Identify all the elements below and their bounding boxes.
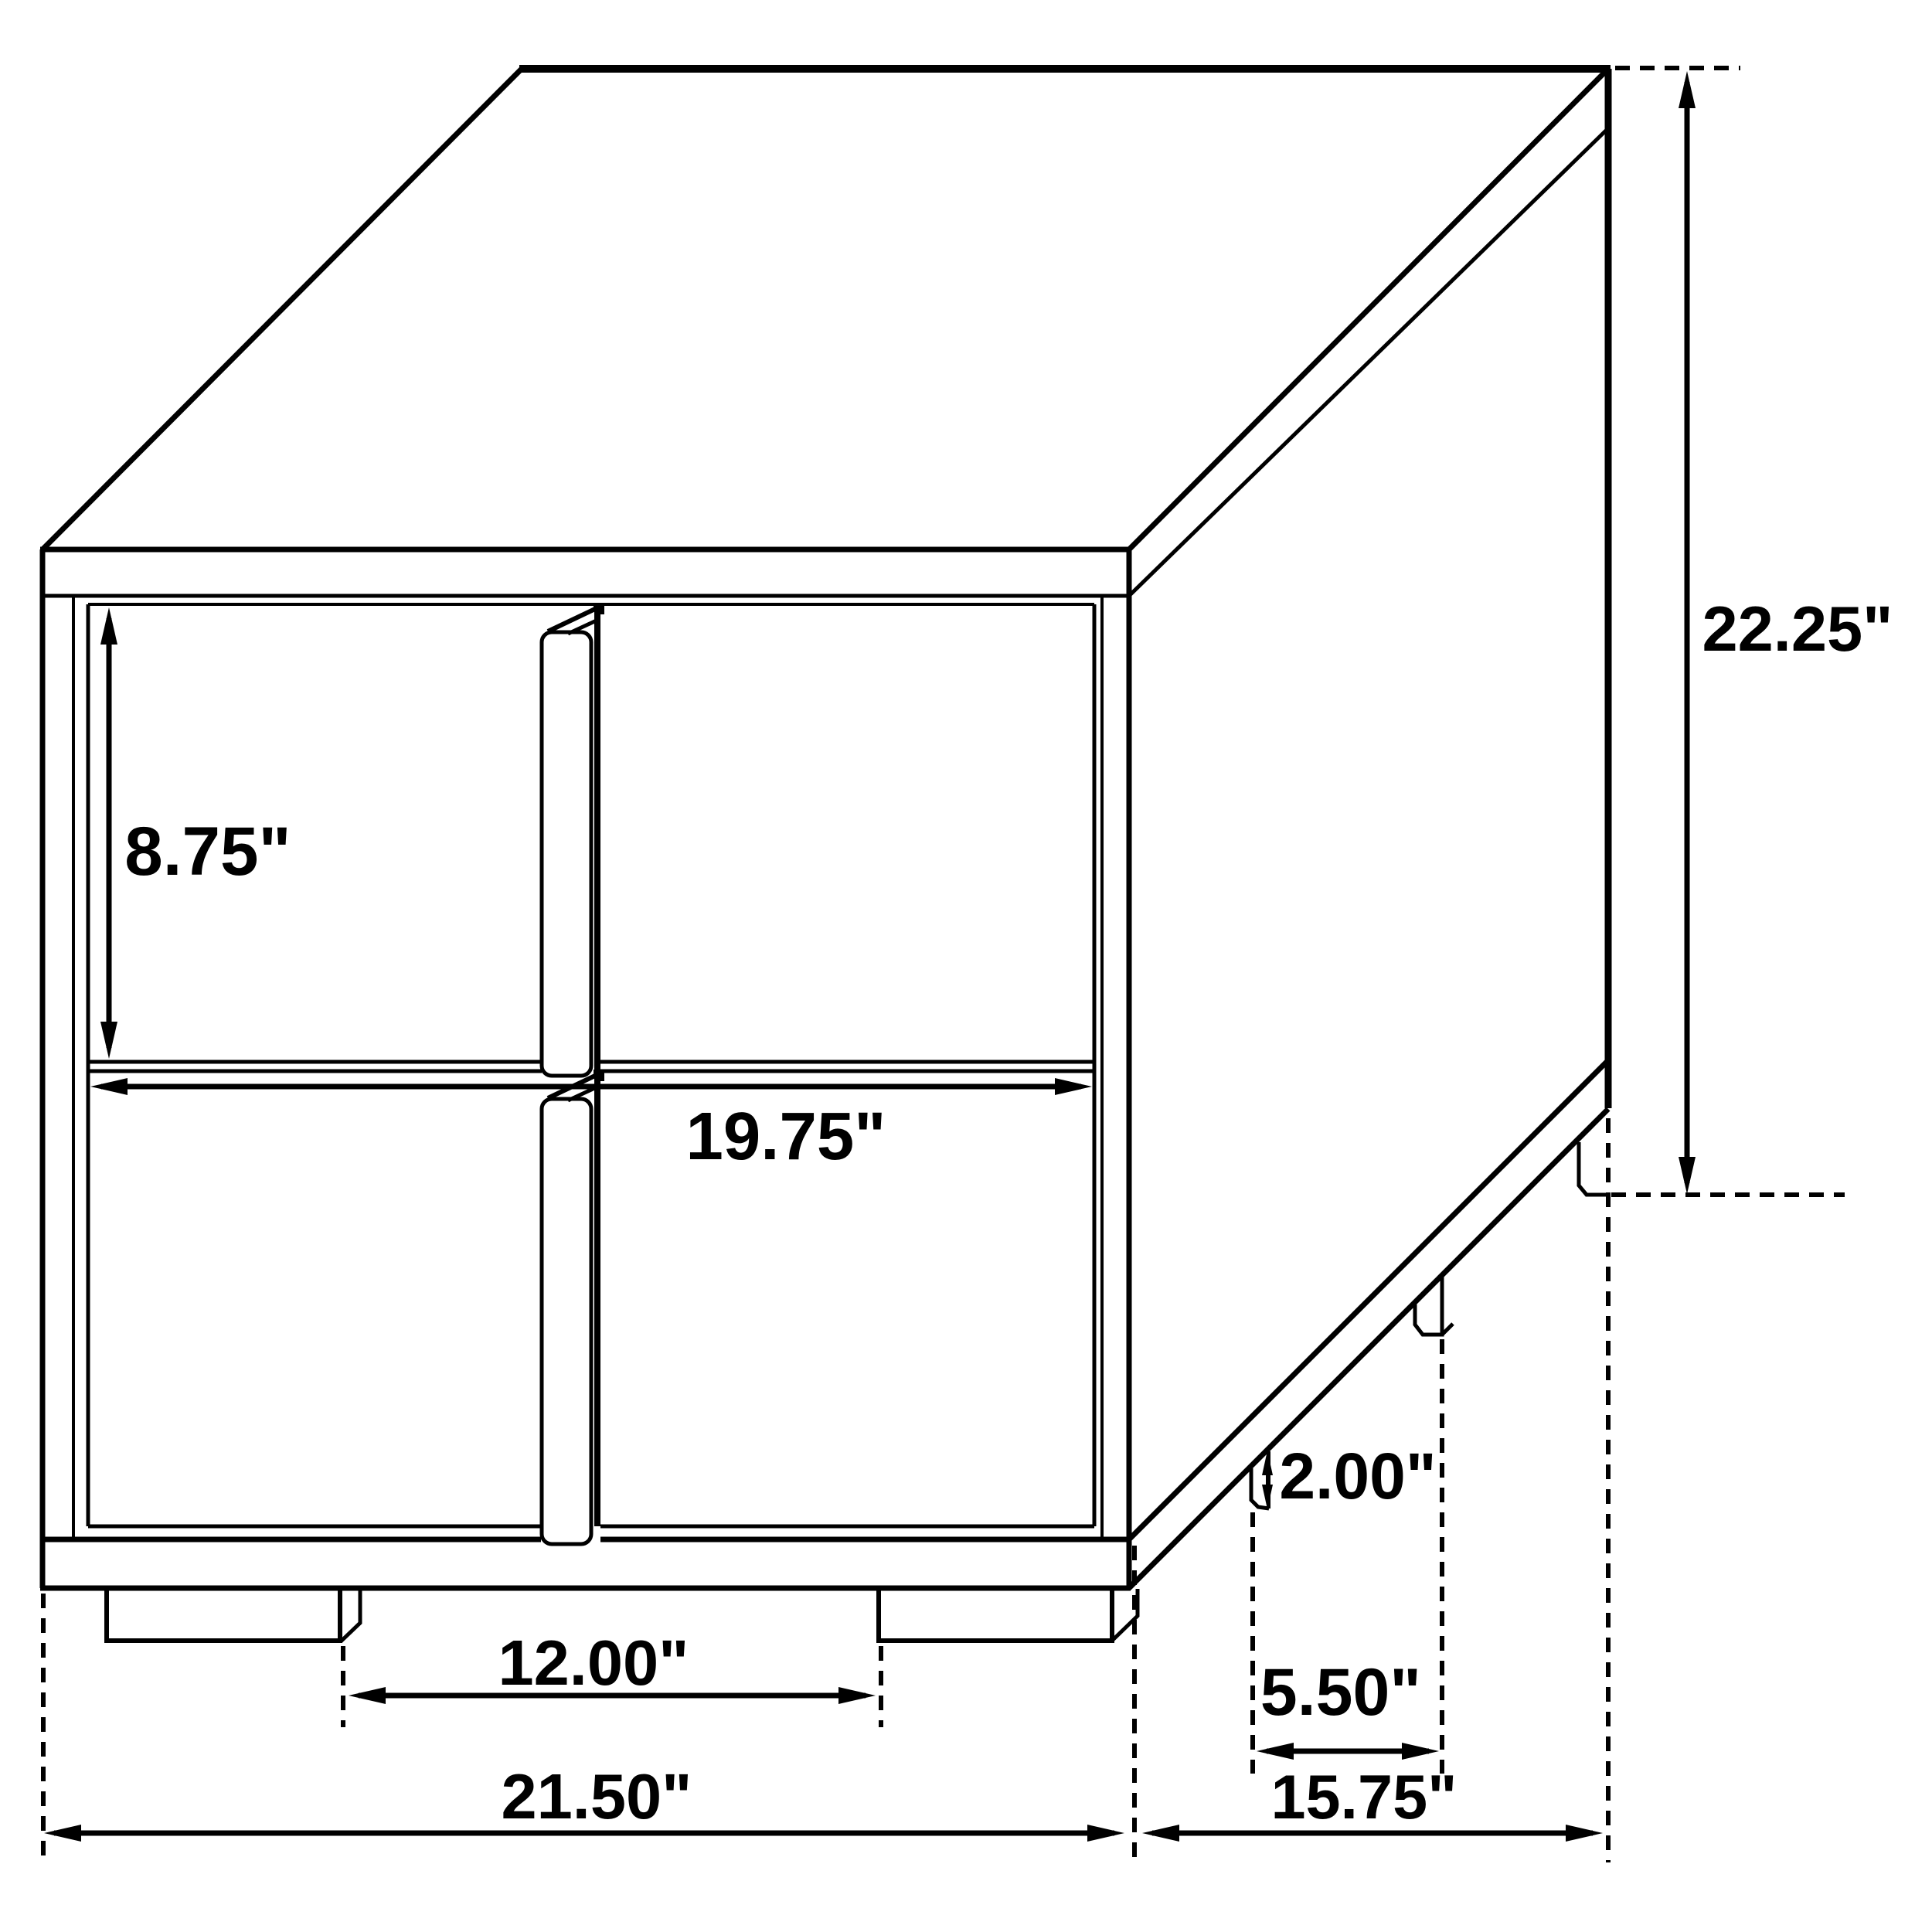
svg-text:5.50": 5.50" — [1260, 1655, 1421, 1730]
svg-text:12.00": 12.00" — [498, 1627, 689, 1699]
svg-text:22.25": 22.25" — [1702, 593, 1893, 665]
svg-text:15.75": 15.75" — [1270, 1763, 1457, 1832]
svg-text:19.75": 19.75" — [686, 1099, 886, 1174]
svg-text:8.75": 8.75" — [124, 812, 291, 889]
svg-text:2.00": 2.00" — [1279, 1440, 1436, 1512]
svg-text:21.50": 21.50" — [501, 1760, 692, 1832]
